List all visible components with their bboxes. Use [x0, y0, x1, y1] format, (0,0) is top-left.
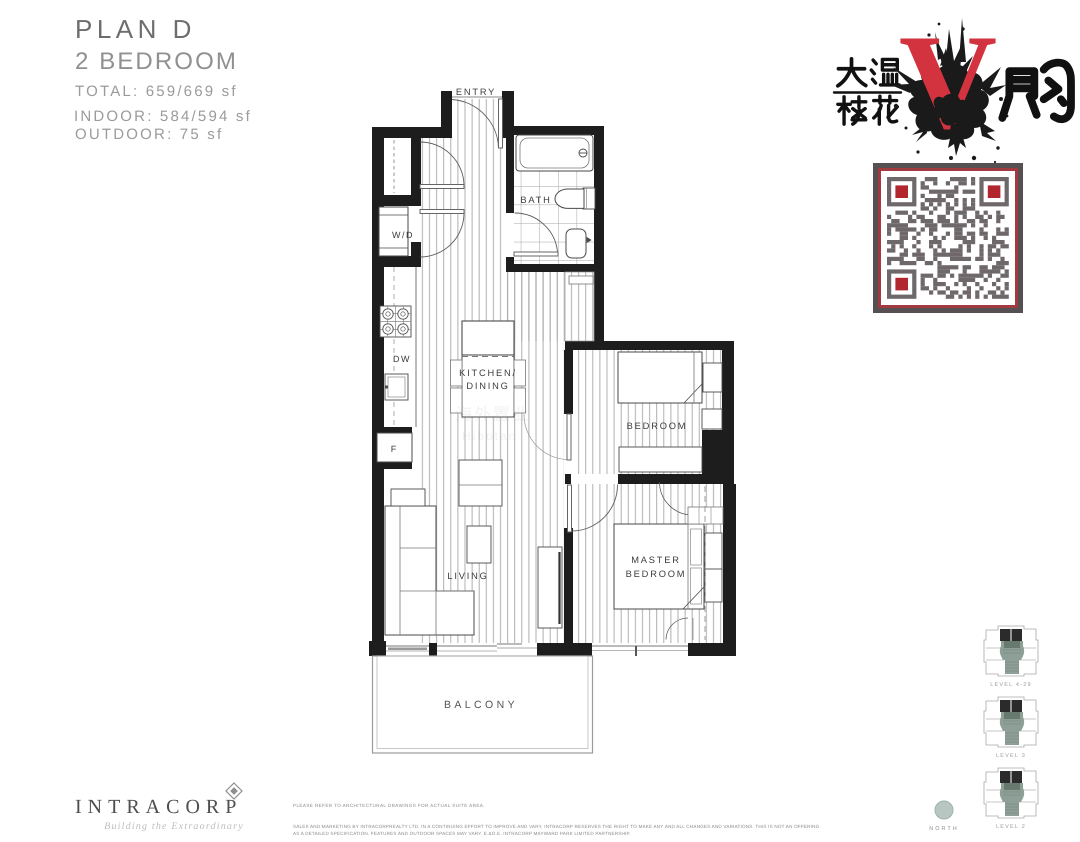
- svg-text:OUTDOOR: 75 sf: OUTDOOR: 75 sf: [75, 126, 223, 143]
- svg-text:PLAN D: PLAN D: [75, 14, 196, 44]
- svg-text:NORTH: NORTH: [929, 826, 958, 832]
- svg-text:INTRACORP: INTRACORP: [75, 796, 242, 818]
- svg-text:LIVING: LIVING: [447, 571, 488, 581]
- svg-text:W/D: W/D: [392, 230, 414, 240]
- svg-text:2 BEDROOM: 2 BEDROOM: [75, 48, 238, 75]
- svg-text:BATH: BATH: [520, 195, 551, 205]
- svg-text:DINING: DINING: [466, 381, 509, 391]
- svg-text:V: V: [899, 8, 997, 158]
- svg-text:SALES AND MARKETING BY INTRACO: SALES AND MARKETING BY INTRACORPREALTY L…: [293, 824, 820, 829]
- svg-text:Hibotan: Hibotan: [462, 429, 517, 443]
- svg-text:MASTER: MASTER: [631, 555, 681, 565]
- svg-text:Building the Extraordinary: Building the Extraordinary: [104, 821, 244, 832]
- svg-text:LEVEL 3: LEVEL 3: [996, 753, 1026, 759]
- svg-text:F: F: [391, 444, 398, 454]
- svg-text:海外置业: 海外置业: [455, 405, 531, 424]
- svg-text:BEDROOM: BEDROOM: [626, 569, 687, 579]
- svg-text:KITCHEN/: KITCHEN/: [459, 368, 517, 378]
- svg-text:DW: DW: [393, 354, 411, 364]
- svg-text:BALCONY: BALCONY: [444, 699, 518, 711]
- svg-text:ENTRY: ENTRY: [456, 87, 496, 97]
- svg-text:BEDROOM: BEDROOM: [627, 421, 688, 431]
- svg-text:AS A DETAILED SPECIFICATION. F: AS A DETAILED SPECIFICATION. FEATURES AN…: [293, 831, 631, 836]
- svg-text:LEVEL 2: LEVEL 2: [996, 824, 1026, 830]
- svg-text:LEVEL 4-29: LEVEL 4-29: [990, 682, 1031, 688]
- svg-text:INDOOR: 584/594 sf: INDOOR: 584/594 sf: [74, 108, 252, 125]
- svg-text:TOTAL: 659/669 sf: TOTAL: 659/669 sf: [75, 83, 238, 100]
- svg-text:PLEASE REFER TO ARCHITECTURAL: PLEASE REFER TO ARCHITECTURAL DRAWINGS F…: [293, 803, 485, 808]
